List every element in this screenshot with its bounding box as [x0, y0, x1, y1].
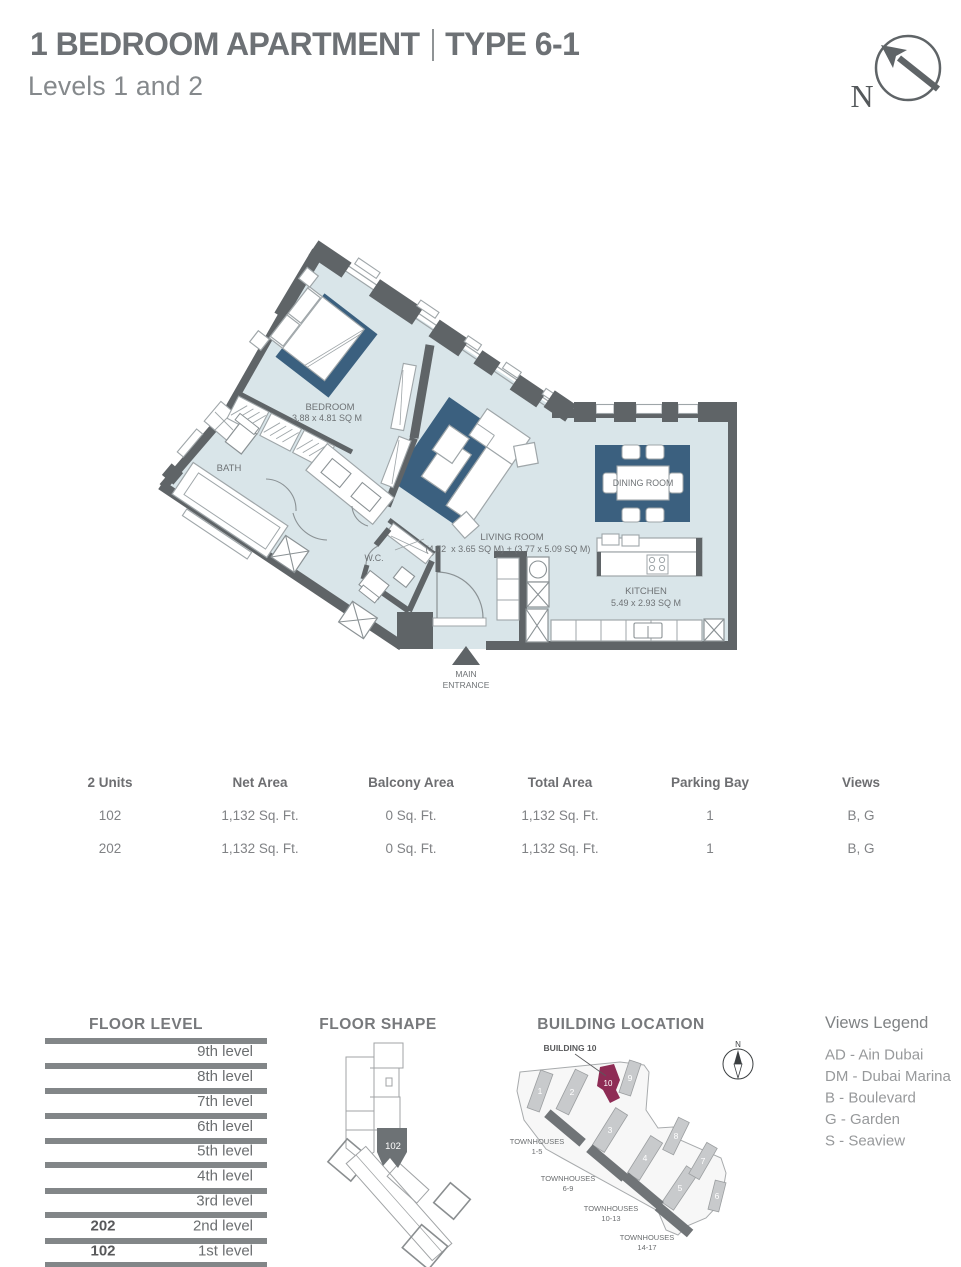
svg-text:7: 7: [701, 1156, 706, 1166]
svg-text:Parking Bay: Parking Bay: [671, 775, 750, 790]
svg-text:6-9: 6-9: [563, 1184, 574, 1193]
svg-text:3rd level: 3rd level: [196, 1193, 253, 1210]
svg-text:DM - Dubai Marina: DM - Dubai Marina: [825, 1068, 952, 1085]
svg-text:N: N: [735, 1040, 741, 1049]
svg-text:W.C.: W.C.: [364, 553, 383, 563]
svg-text:B - Boulevard: B - Boulevard: [825, 1090, 916, 1107]
svg-text:8: 8: [674, 1131, 679, 1141]
svg-text:1,132 Sq. Ft.: 1,132 Sq. Ft.: [521, 841, 598, 856]
svg-text:5th level: 5th level: [197, 1143, 253, 1160]
svg-text:4: 4: [643, 1153, 648, 1163]
svg-text:AD - Ain Dubai: AD - Ain Dubai: [825, 1047, 923, 1064]
svg-text:BUILDING LOCATION: BUILDING LOCATION: [537, 1016, 705, 1033]
svg-text:FLOOR SHAPE: FLOOR SHAPE: [319, 1016, 436, 1033]
svg-text:10: 10: [604, 1079, 613, 1088]
svg-text:14-17: 14-17: [637, 1243, 656, 1252]
svg-text:3.88 x 4.81 SQ M: 3.88 x 4.81 SQ M: [292, 413, 362, 423]
svg-text:5.49 x 2.93 SQ M: 5.49 x 2.93 SQ M: [611, 598, 681, 608]
svg-text:DINING ROOM: DINING ROOM: [613, 478, 674, 488]
svg-text:9th level: 9th level: [197, 1043, 253, 1060]
svg-text:S - Seaview: S - Seaview: [825, 1133, 905, 1150]
svg-text:B, G: B, G: [847, 841, 874, 856]
svg-text:BATH: BATH: [217, 463, 242, 474]
svg-text:102: 102: [385, 1141, 401, 1152]
svg-text:6: 6: [715, 1191, 720, 1201]
svg-text:9: 9: [628, 1073, 633, 1083]
svg-text:TOWNHOUSES: TOWNHOUSES: [620, 1233, 674, 1242]
svg-text:BEDROOM: BEDROOM: [305, 402, 354, 413]
svg-text:7th level: 7th level: [197, 1093, 253, 1110]
svg-text:0 Sq. Ft.: 0 Sq. Ft.: [385, 841, 436, 856]
svg-text:102: 102: [90, 1243, 115, 1260]
svg-text:1st level: 1st level: [198, 1243, 253, 1260]
svg-text:Total Area: Total Area: [528, 775, 593, 790]
svg-text:FLOOR LEVEL: FLOOR LEVEL: [89, 1016, 203, 1033]
svg-text:TOWNHOUSES: TOWNHOUSES: [584, 1204, 638, 1213]
svg-text:2nd level: 2nd level: [193, 1218, 253, 1235]
svg-text:102: 102: [99, 808, 122, 823]
svg-text:202: 202: [90, 1218, 115, 1235]
svg-text:Views Legend: Views Legend: [825, 1014, 928, 1032]
svg-text:1-5: 1-5: [532, 1147, 543, 1156]
svg-text:1,132 Sq. Ft.: 1,132 Sq. Ft.: [521, 808, 598, 823]
svg-text:6th level: 6th level: [197, 1118, 253, 1135]
svg-text:3: 3: [608, 1125, 613, 1135]
svg-text:2 Units: 2 Units: [87, 775, 132, 790]
svg-text:TOWNHOUSES: TOWNHOUSES: [541, 1174, 595, 1183]
svg-text:0 Sq. Ft.: 0 Sq. Ft.: [385, 808, 436, 823]
svg-text:4th level: 4th level: [197, 1168, 253, 1185]
svg-text:KITCHEN: KITCHEN: [625, 586, 667, 597]
svg-text:LIVING ROOM: LIVING ROOM: [480, 532, 543, 543]
svg-text:B, G: B, G: [847, 808, 874, 823]
svg-text:ENTRANCE: ENTRANCE: [443, 680, 490, 690]
svg-text:1,132 Sq. Ft.: 1,132 Sq. Ft.: [221, 841, 298, 856]
svg-text:(4.72 x 3.65 SQ M) + (3.77 x: (4.72 x 3.65 SQ M) + (3.77 x 5.09 SQ M): [426, 544, 591, 554]
svg-text:G - Garden: G - Garden: [825, 1111, 900, 1128]
svg-text:5: 5: [678, 1183, 683, 1193]
svg-text:1: 1: [706, 841, 714, 856]
svg-text:8th level: 8th level: [197, 1068, 253, 1085]
svg-text:Net Area: Net Area: [232, 775, 288, 790]
svg-text:1: 1: [706, 808, 714, 823]
svg-text:Views: Views: [842, 775, 880, 790]
svg-text:Balcony Area: Balcony Area: [368, 775, 454, 790]
svg-text:N: N: [850, 78, 873, 114]
svg-text:202: 202: [99, 841, 122, 856]
svg-text:1,132 Sq. Ft.: 1,132 Sq. Ft.: [221, 808, 298, 823]
svg-text:MAIN: MAIN: [455, 669, 476, 679]
svg-text:BUILDING 10: BUILDING 10: [544, 1043, 597, 1053]
svg-text:10-13: 10-13: [601, 1214, 620, 1223]
svg-text:TOWNHOUSES: TOWNHOUSES: [510, 1137, 564, 1146]
svg-text:2: 2: [570, 1087, 575, 1097]
svg-text:1: 1: [538, 1086, 543, 1096]
